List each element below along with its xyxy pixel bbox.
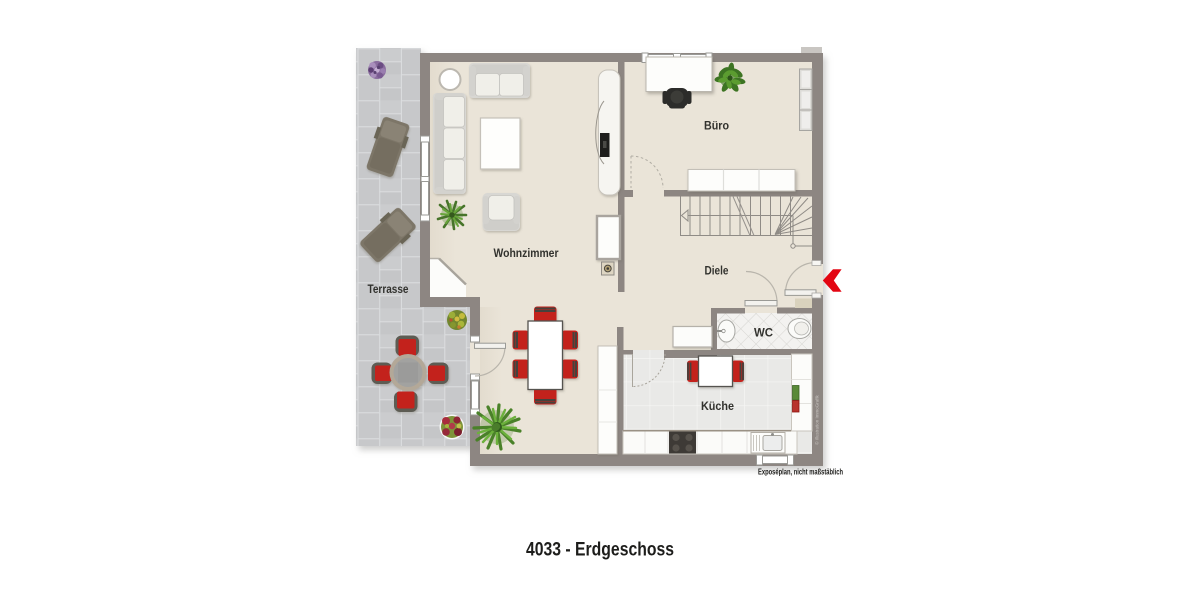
svg-text:Küche: Küche [701,399,734,413]
svg-text:4033 - Erdgeschoss: 4033 - Erdgeschoss [526,538,674,560]
svg-text:Büro: Büro [704,119,729,133]
svg-text:WC: WC [754,326,773,340]
svg-text:Diele: Diele [705,264,729,278]
svg-text:Exposéplan, nicht maßstäblich: Exposéplan, nicht maßstäblich [758,468,843,477]
svg-text:Terrasse: Terrasse [368,282,409,296]
svg-text:Wohnzimmer: Wohnzimmer [494,246,559,260]
svg-text:© Illustration ImmoGrafik: © Illustration ImmoGrafik [814,394,820,444]
